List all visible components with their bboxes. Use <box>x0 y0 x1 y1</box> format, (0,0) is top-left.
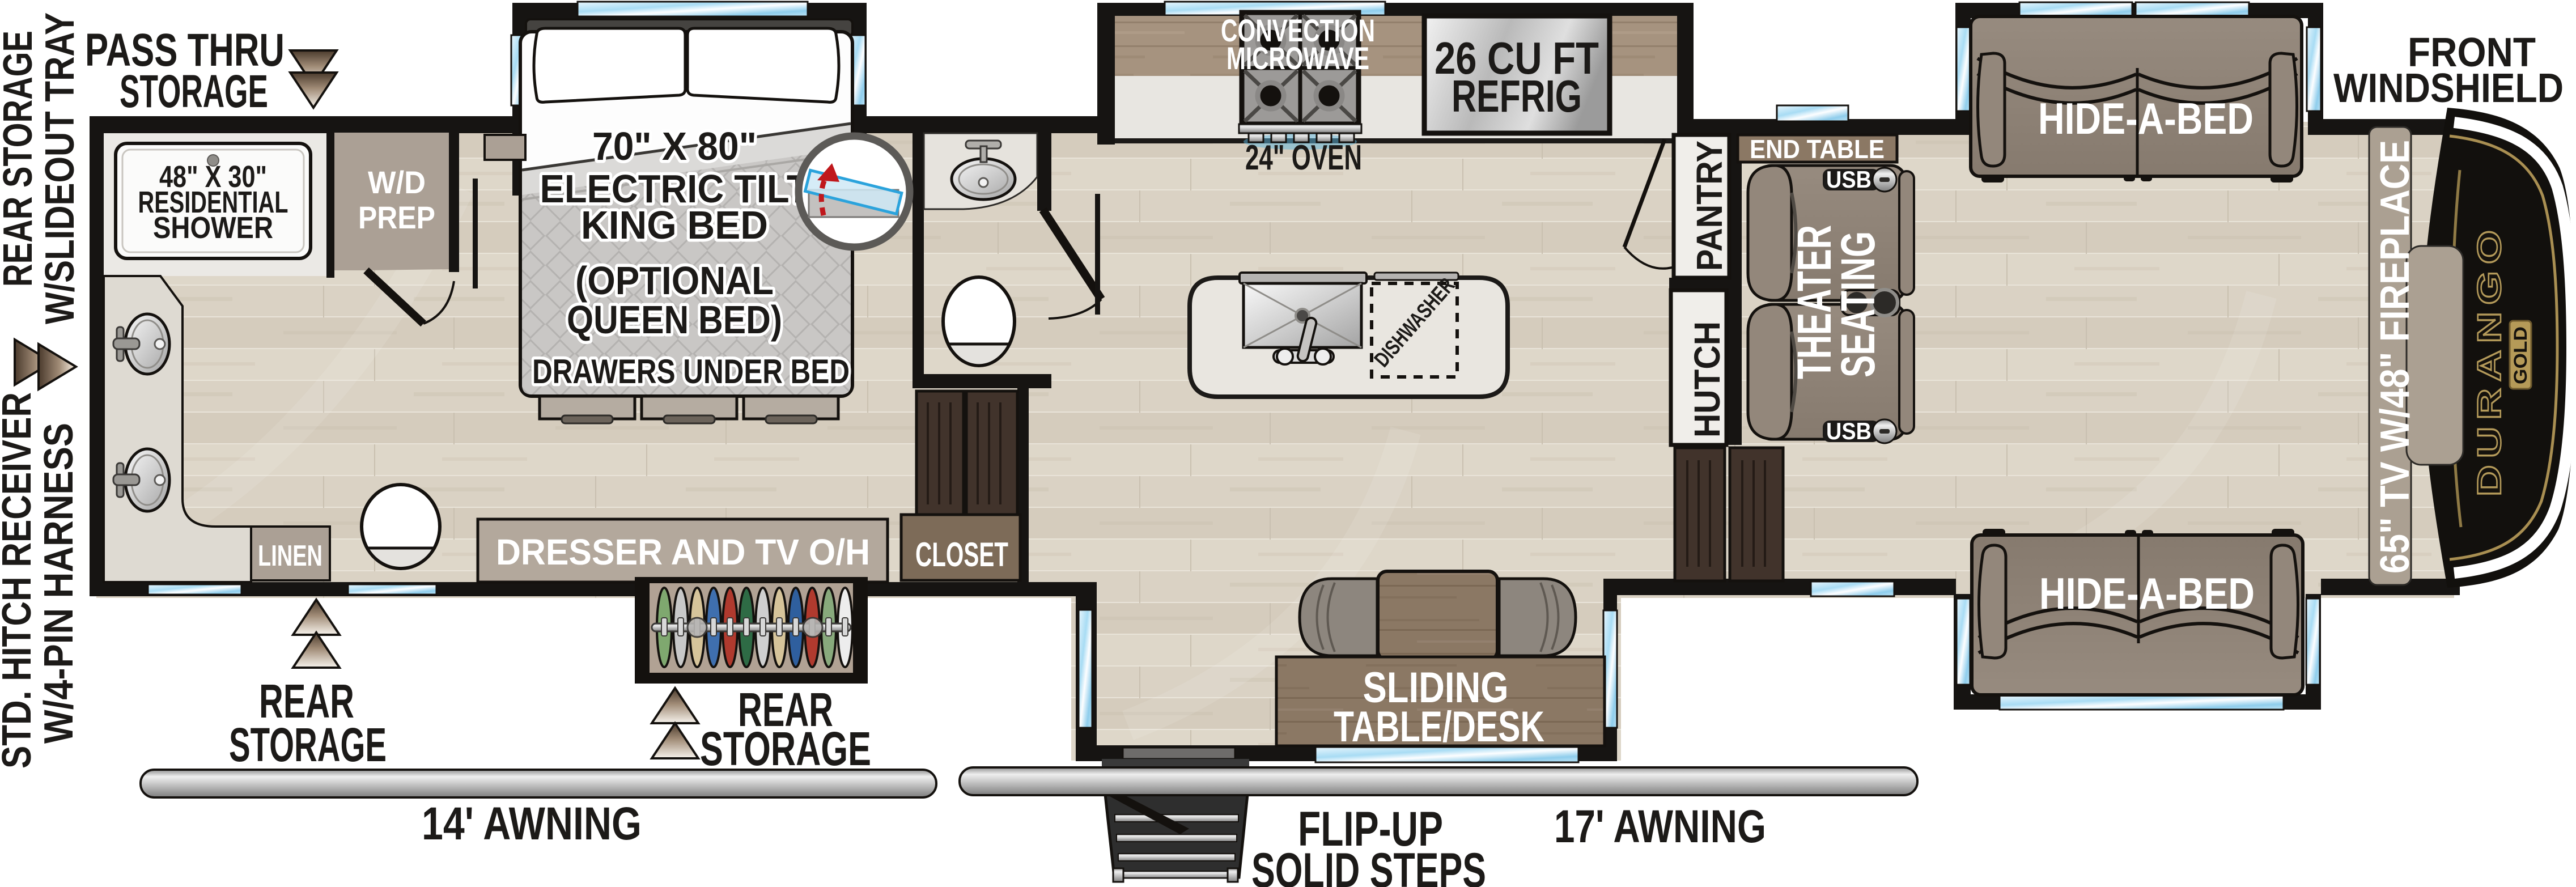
svg-text:STORAGE: STORAGE <box>700 722 871 775</box>
svg-text:DURANGO: DURANGO <box>2471 223 2508 496</box>
svg-text:SOLID STEPS: SOLID STEPS <box>1251 843 1486 887</box>
svg-text:USB: USB <box>1826 166 1871 193</box>
svg-text:QUEEN BED): QUEEN BED) <box>567 298 782 342</box>
svg-text:DRESSER AND TV O/H: DRESSER AND TV O/H <box>496 532 870 572</box>
svg-text:W/4-PIN HARNESS: W/4-PIN HARNESS <box>36 423 82 744</box>
svg-text:W/SLIDEOUT TRAY: W/SLIDEOUT TRAY <box>37 12 83 324</box>
svg-text:LINEN: LINEN <box>258 540 322 572</box>
svg-text:SEATING: SEATING <box>1831 231 1885 377</box>
svg-text:REAR STORAGE: REAR STORAGE <box>0 31 41 287</box>
svg-text:HUTCH: HUTCH <box>1687 321 1728 438</box>
svg-text:HIDE-A-BED: HIDE-A-BED <box>2038 94 2254 143</box>
svg-text:KING BED: KING BED <box>581 203 768 247</box>
svg-text:MICROWAVE: MICROWAVE <box>1227 40 1369 76</box>
svg-text:HIDE-A-BED: HIDE-A-BED <box>2039 568 2255 618</box>
svg-text:WINDSHIELD: WINDSHIELD <box>2333 66 2564 111</box>
svg-text:CLOSET: CLOSET <box>915 536 1008 574</box>
svg-text:END TABLE: END TABLE <box>1750 134 1885 164</box>
svg-text:65" TV W/48" FIREPLACE: 65" TV W/48" FIREPLACE <box>2373 140 2418 574</box>
svg-text:14' AWNING: 14' AWNING <box>422 798 642 850</box>
svg-text:STORAGE: STORAGE <box>120 66 268 117</box>
svg-text:SHOWER: SHOWER <box>153 211 273 245</box>
svg-text:REFRIG: REFRIG <box>1452 71 1582 121</box>
svg-text:GOLD: GOLD <box>2510 326 2531 384</box>
svg-text:17' AWNING: 17' AWNING <box>1554 801 1766 852</box>
svg-text:PREP: PREP <box>358 200 435 235</box>
svg-text:W/D: W/D <box>368 164 426 200</box>
svg-text:PANTRY: PANTRY <box>1689 141 1730 271</box>
svg-text:STORAGE: STORAGE <box>229 718 387 771</box>
svg-text:(OPTIONAL: (OPTIONAL <box>575 258 774 303</box>
svg-text:USB: USB <box>1826 418 1871 444</box>
svg-text:STD. HITCH RECEIVER: STD. HITCH RECEIVER <box>0 392 40 769</box>
svg-text:70" X 80": 70" X 80" <box>592 124 757 168</box>
svg-text:DRAWERS UNDER BED: DRAWERS UNDER BED <box>532 353 850 391</box>
svg-text:TABLE/DESK: TABLE/DESK <box>1334 703 1544 751</box>
svg-text:24" OVEN: 24" OVEN <box>1245 138 1362 177</box>
